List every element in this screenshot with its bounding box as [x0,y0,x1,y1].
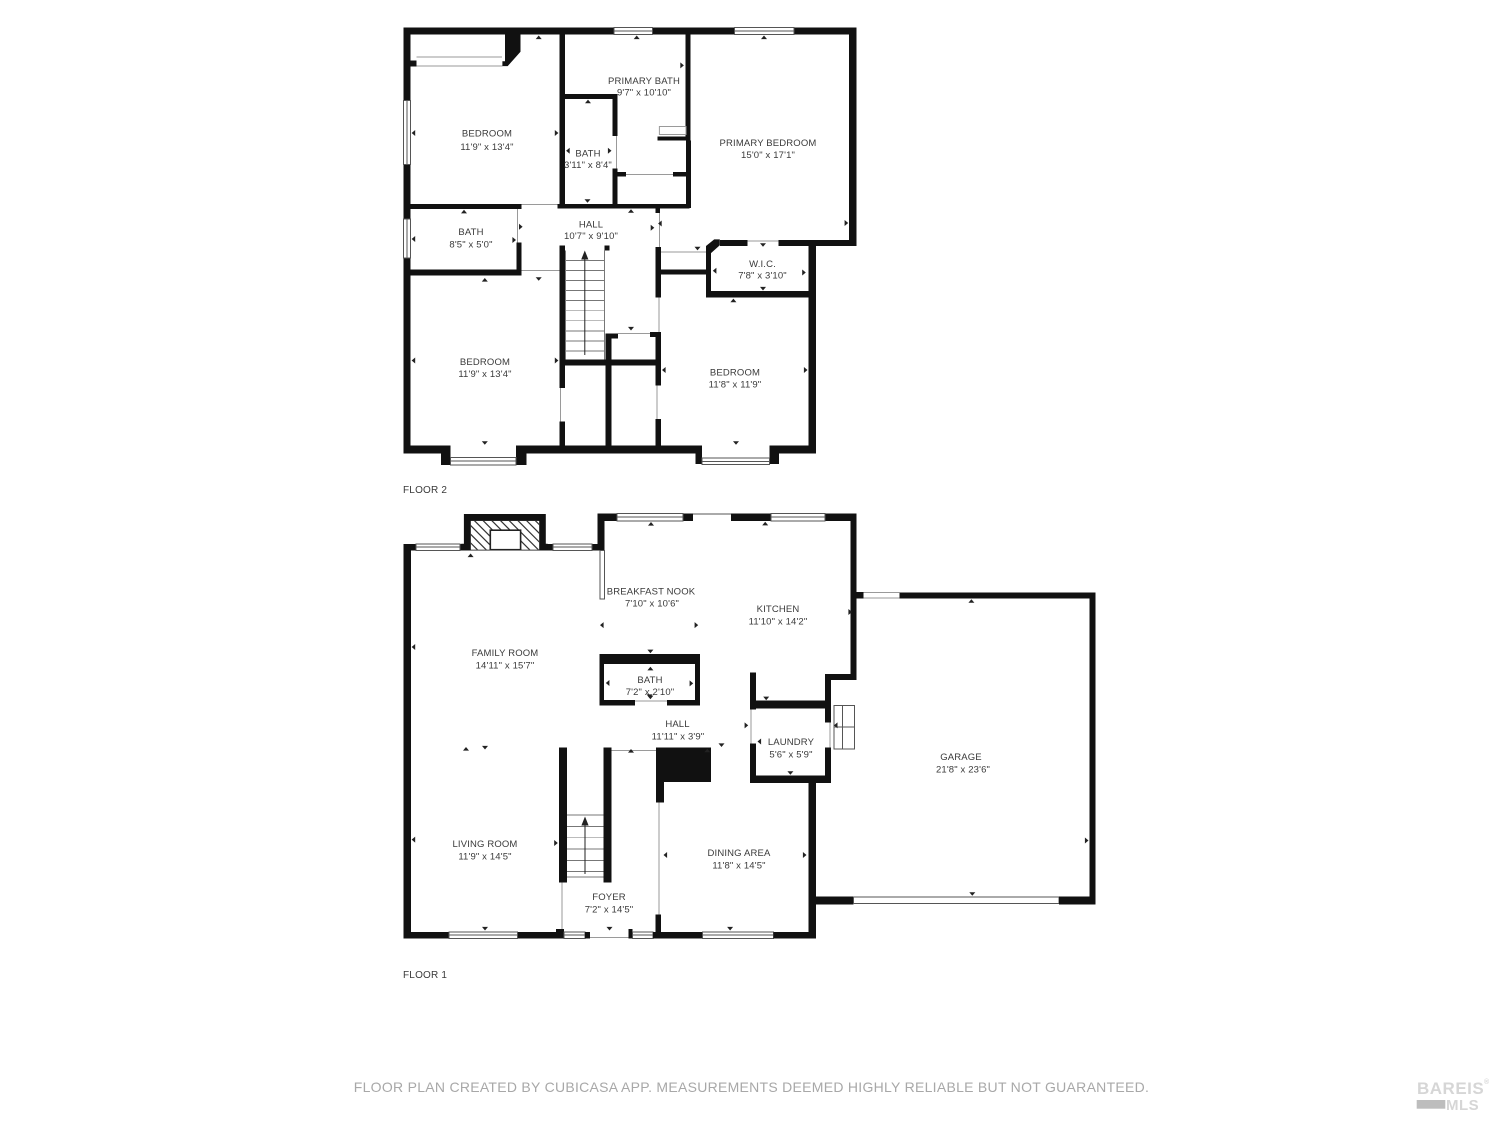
svg-text:7'8" x 3'10": 7'8" x 3'10" [738,271,787,282]
svg-text:7'10" x 10'6": 7'10" x 10'6" [625,599,679,610]
svg-text:GARAGE: GARAGE [940,752,982,763]
svg-text:BREAKFAST NOOK: BREAKFAST NOOK [607,587,696,598]
svg-text:10'7" x 9'10": 10'7" x 9'10" [564,231,618,242]
svg-text:DINING AREA: DINING AREA [708,848,771,859]
svg-text:11'9" x 13'4": 11'9" x 13'4" [460,142,513,153]
svg-text:BATH: BATH [575,149,600,160]
svg-text:FAMILY ROOM: FAMILY ROOM [472,648,539,659]
svg-text:11'11" x 3'9": 11'11" x 3'9" [652,732,705,743]
svg-text:11'9" x 13'4": 11'9" x 13'4" [458,369,511,380]
svg-text:LIVING ROOM: LIVING ROOM [453,839,518,850]
svg-text:11'10" x 14'2": 11'10" x 14'2" [749,617,808,628]
svg-text:8'5" x 5'0": 8'5" x 5'0" [449,240,492,251]
svg-text:11'8" x 14'5": 11'8" x 14'5" [712,861,765,872]
svg-text:HALL: HALL [579,220,603,231]
svg-text:PRIMARY BATH: PRIMARY BATH [608,76,680,87]
svg-text:21'8" x 23'6": 21'8" x 23'6" [936,765,990,776]
svg-text:11'8" x 11'9": 11'8" x 11'9" [709,380,762,391]
svg-text:MLS: MLS [1446,1097,1479,1114]
svg-text:LAUNDRY: LAUNDRY [768,737,815,748]
svg-text:PRIMARY BEDROOM: PRIMARY BEDROOM [720,138,817,149]
svg-text:BATH: BATH [458,227,483,238]
svg-text:FLOOR PLAN CREATED BY CUBICASA: FLOOR PLAN CREATED BY CUBICASA APP. MEAS… [354,1079,1149,1095]
svg-text:W.I.C.: W.I.C. [749,259,776,270]
svg-text:HALL: HALL [665,719,689,730]
svg-text:BAREIS: BAREIS [1417,1079,1484,1098]
svg-text:KITCHEN: KITCHEN [757,604,800,615]
svg-text:FLOOR 1: FLOOR 1 [403,970,447,981]
svg-text:BEDROOM: BEDROOM [710,368,760,379]
svg-text:FOYER: FOYER [592,892,625,903]
svg-text:7'2" x 14'5": 7'2" x 14'5" [585,905,634,916]
svg-text:BATH: BATH [637,675,662,686]
svg-text:®: ® [1484,1078,1490,1086]
svg-text:3'11" x 8'4": 3'11" x 8'4" [564,160,612,171]
svg-text:11'9" x 14'5": 11'9" x 14'5" [458,852,511,863]
svg-text:14'11" x 15'7": 14'11" x 15'7" [476,661,535,672]
svg-text:BEDROOM: BEDROOM [460,357,510,368]
svg-text:9'7" x 10'10": 9'7" x 10'10" [617,88,671,99]
svg-text:15'0" x 17'1": 15'0" x 17'1" [741,150,795,161]
svg-text:5'6" x 5'9": 5'6" x 5'9" [769,750,812,761]
svg-text:FLOOR 2: FLOOR 2 [403,485,447,496]
svg-text:BEDROOM: BEDROOM [462,129,512,140]
